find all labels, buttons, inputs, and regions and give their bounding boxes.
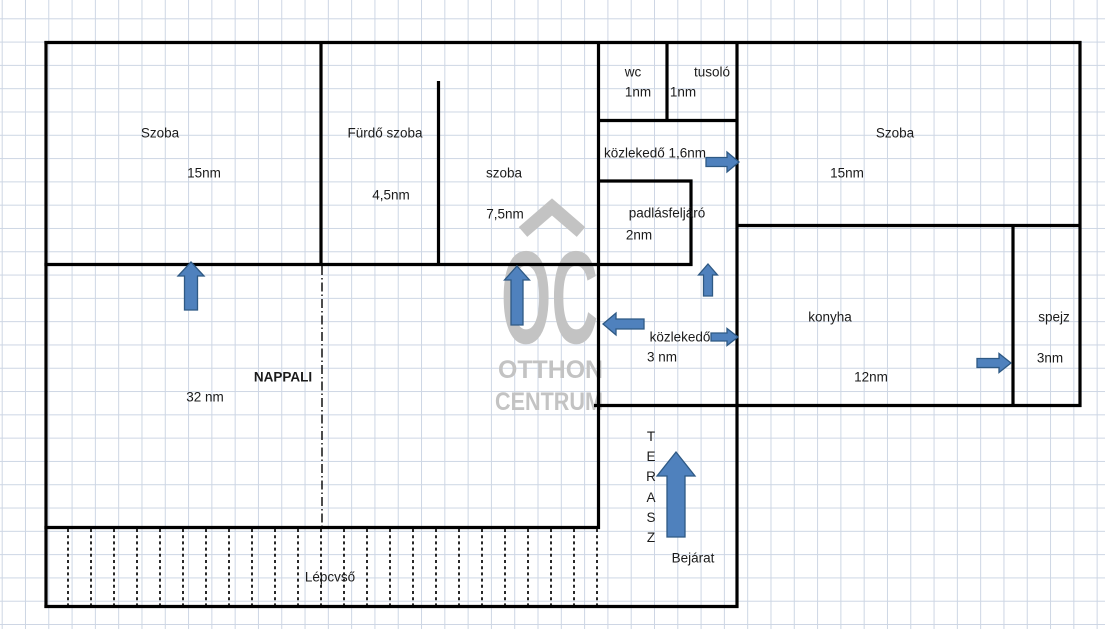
watermark-line1: OTTHON <box>498 356 603 384</box>
door-kozlekedo-nappali-arrow-icon <box>603 313 644 335</box>
door-kozlekedo-konyha-arrow-icon <box>711 329 738 346</box>
door-nappali-szoba-left-arrow-icon <box>178 262 204 310</box>
floor-plan-drawing: OCOTTHONCENTRUM <box>0 0 1105 629</box>
watermark-line2: CENTRUM <box>495 388 603 416</box>
entrance-terasz-arrow-icon <box>657 452 695 537</box>
stairs-hatching <box>68 529 597 605</box>
door-kozlekedo-szoba-right-arrow-icon <box>706 152 739 172</box>
floor-plan-canvas: OCOTTHONCENTRUM Szoba15nmFürdő szoba4,5n… <box>0 0 1105 629</box>
door-kozlekedo-padlasfeljaro-arrow-icon <box>699 264 718 296</box>
door-konyha-spejz-arrow-icon <box>977 354 1011 373</box>
